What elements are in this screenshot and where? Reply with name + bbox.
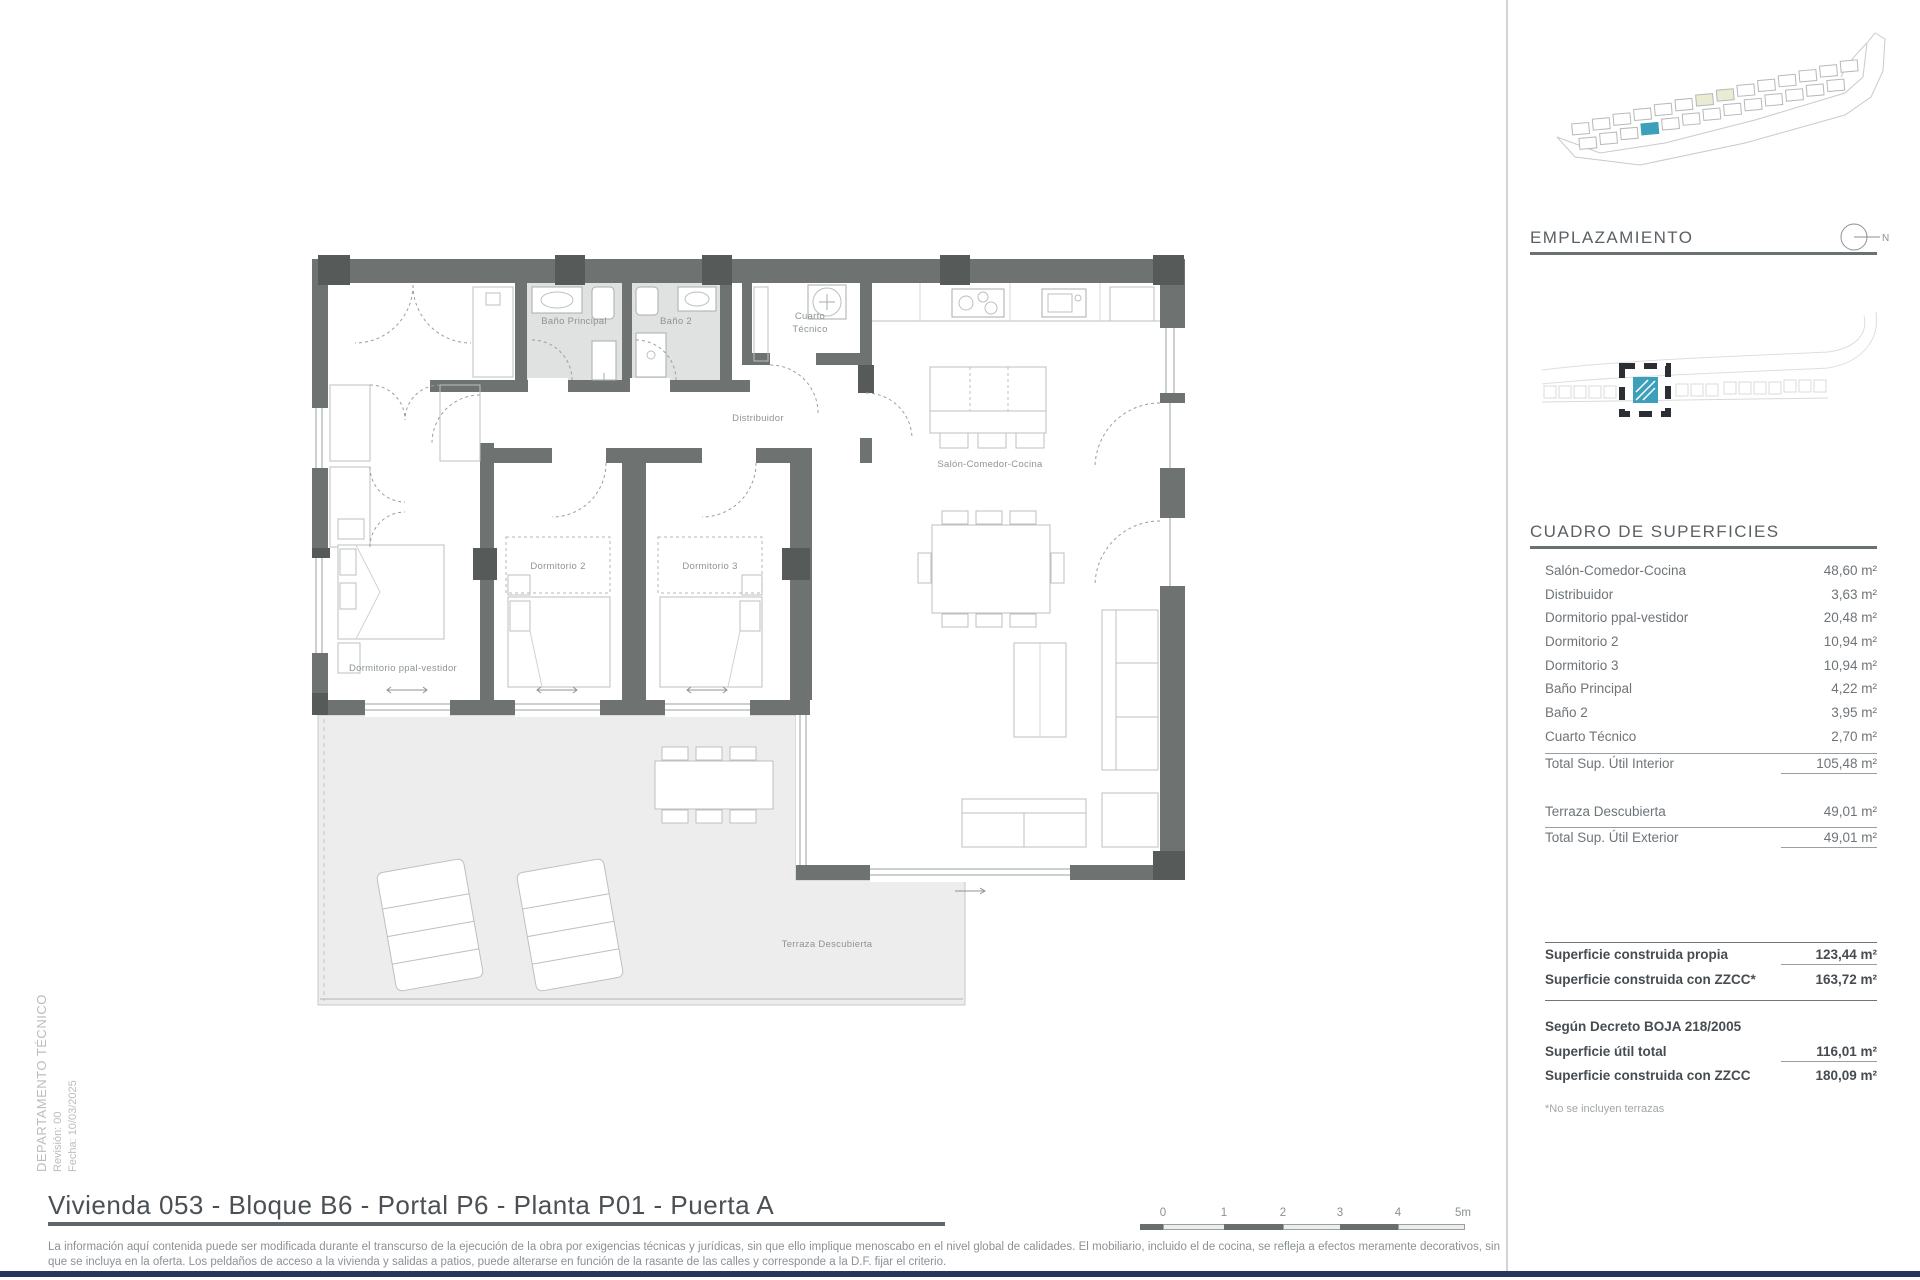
right-wall-openings	[1158, 328, 1187, 586]
sheet-title: Vivienda 053 - Bloque B6 - Portal P6 - P…	[48, 1190, 774, 1221]
room-label-salon: Salón-Comedor-Cocina	[937, 459, 1043, 470]
revision-label: Revisión: 00	[52, 994, 64, 1172]
terrace-row: Terraza Descubierta49,01 m²	[1545, 804, 1877, 828]
bed-dorm3	[660, 575, 762, 687]
bedroom-windows	[365, 698, 750, 717]
scale-label-2: 2	[1280, 1207, 1286, 1219]
window-left-1	[310, 408, 330, 468]
table-row: Salón-Comedor-Cocina48,60 m²	[1545, 563, 1877, 587]
footnote: *No se incluyen terrazas	[1545, 1103, 1877, 1115]
built-row: Superficie construida propia123,44 m²	[1545, 942, 1877, 972]
room-label-cuarto-2: Técnico	[792, 324, 827, 335]
bed-ppal	[338, 519, 444, 673]
room-label-dorm2: Dormitorio 2	[530, 561, 585, 572]
highlighted-unit	[1633, 377, 1658, 403]
room-label-dorm3: Dormitorio 3	[682, 561, 737, 572]
table-row: Dormitorio 310,94 m²	[1545, 658, 1877, 682]
bed-dorm2	[508, 575, 610, 687]
architectural-plan-sheet: { "meta": { "department": "DEPARTAMENTO …	[0, 0, 1920, 1280]
built-surface-block: Superficie construida propia123,44 m² Su…	[1545, 942, 1877, 1115]
exterior-total-row: Total Sup. Útil Exterior49,01 m²	[1545, 827, 1877, 852]
room-label-terraza: Terraza Descubierta	[782, 939, 873, 950]
room-label-cuarto-1: Cuarto	[795, 311, 825, 322]
scale-label-0: 0	[1160, 1207, 1166, 1219]
scale-label-3: 3	[1337, 1207, 1343, 1219]
room-label-dorm-ppal: Dormitorio ppal-vestidor	[349, 663, 457, 674]
decree-row: Superficie construida con ZZCC180,09 m²	[1545, 1068, 1877, 1093]
room-label-bano2: Baño 2	[660, 316, 692, 327]
window-arrows	[387, 687, 727, 693]
scale-label-5m: 5m	[1455, 1207, 1471, 1219]
floor-plan: Baño Principal Baño 2 Cuarto Técnico Dis…	[310, 253, 1190, 1013]
scale-label-1: 1	[1221, 1207, 1227, 1219]
disclaimer-text: La información aquí contenida puede ser …	[48, 1240, 1500, 1269]
department-label: DEPARTAMENTO TÉCNICO	[34, 994, 49, 1172]
room-label-bano-principal: Baño Principal	[541, 316, 606, 327]
sidebar-divider	[1506, 0, 1508, 1271]
room-label-distribuidor: Distribuidor	[732, 413, 784, 424]
title-rule	[48, 1222, 945, 1226]
table-row: Cuarto Técnico2,70 m²	[1545, 729, 1877, 753]
siteplan-plan-thumbnail	[1528, 298, 1890, 443]
entry-closet	[473, 287, 513, 377]
interior-total-row: Total Sup. Útil Interior105,48 m²	[1545, 753, 1877, 778]
decree-heading-row: Según Decreto BOJA 218/2005	[1545, 1019, 1877, 1044]
table-row: Dormitorio ppal-vestidor20,48 m²	[1545, 610, 1877, 634]
svg-text:N: N	[1882, 233, 1889, 244]
kitchen-island	[930, 367, 1046, 448]
built-row: Superficie construida con ZZCC*163,72 m²	[1545, 972, 1877, 1002]
siteplan-axon-thumbnail	[1545, 15, 1895, 180]
table-row: Dormitorio 210,94 m²	[1545, 634, 1877, 658]
table-row: Baño 23,95 m²	[1545, 705, 1877, 729]
dining-table	[918, 511, 1064, 627]
vestidor-closets	[330, 385, 480, 547]
window-left-2	[310, 558, 330, 653]
surfaces-heading: CUADRO DE SUPERFICIES	[1530, 522, 1780, 542]
footer-bar	[0, 1271, 1920, 1277]
date-label: Fecha: 10/03/2025	[67, 994, 79, 1172]
cuarto-tecnico-fixtures	[754, 285, 846, 361]
kitchen-counter	[872, 283, 1160, 321]
sheet-meta-vertical: DEPARTAMENTO TÉCNICO Revisión: 00 Fecha:…	[34, 994, 79, 1172]
emplazamiento-rule	[1530, 252, 1877, 255]
surfaces-rule	[1530, 546, 1877, 549]
table-row: Distribuidor3,63 m²	[1545, 587, 1877, 611]
scale-label-4: 4	[1395, 1207, 1401, 1219]
sofa-set	[962, 610, 1158, 847]
terrace-table	[655, 747, 773, 823]
north-arrow-icon: N	[1838, 218, 1894, 256]
decree-row: Superficie útil total116,01 m²	[1545, 1044, 1877, 1069]
emplazamiento-heading: EMPLAZAMIENTO	[1530, 228, 1693, 248]
table-row: Baño Principal4,22 m²	[1545, 681, 1877, 705]
surfaces-table: Salón-Comedor-Cocina48,60 m² Distribuido…	[1545, 563, 1877, 852]
